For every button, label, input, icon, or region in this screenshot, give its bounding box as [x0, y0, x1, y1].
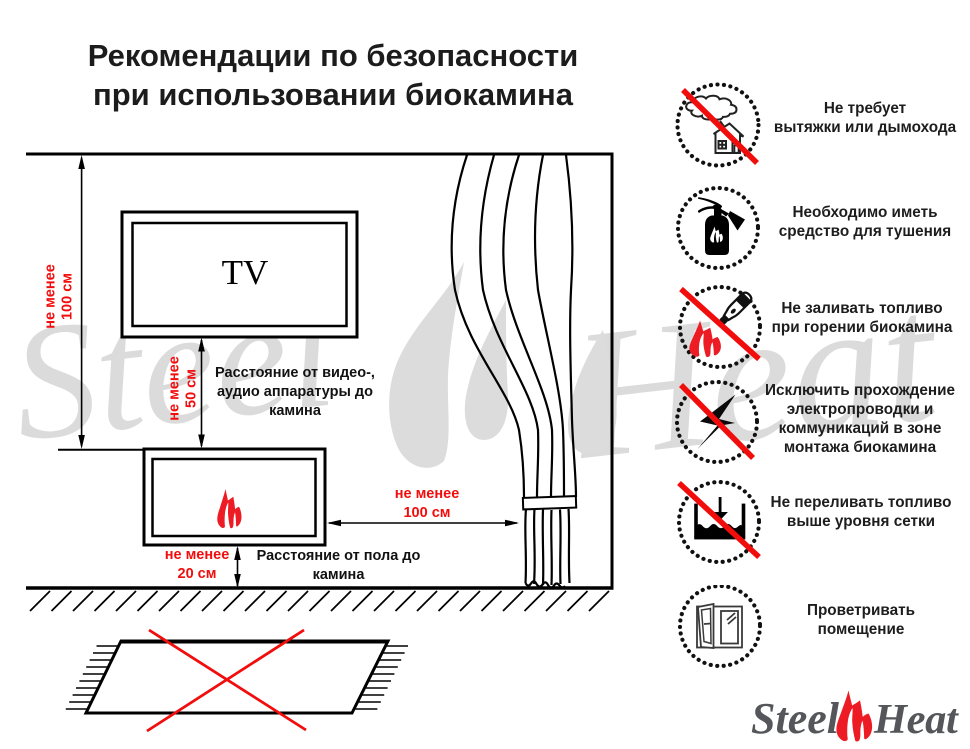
svg-text:TV: TV — [222, 253, 269, 292]
svg-text:Heat: Heat — [873, 696, 959, 743]
svg-text:Steel: Steel — [751, 694, 840, 743]
